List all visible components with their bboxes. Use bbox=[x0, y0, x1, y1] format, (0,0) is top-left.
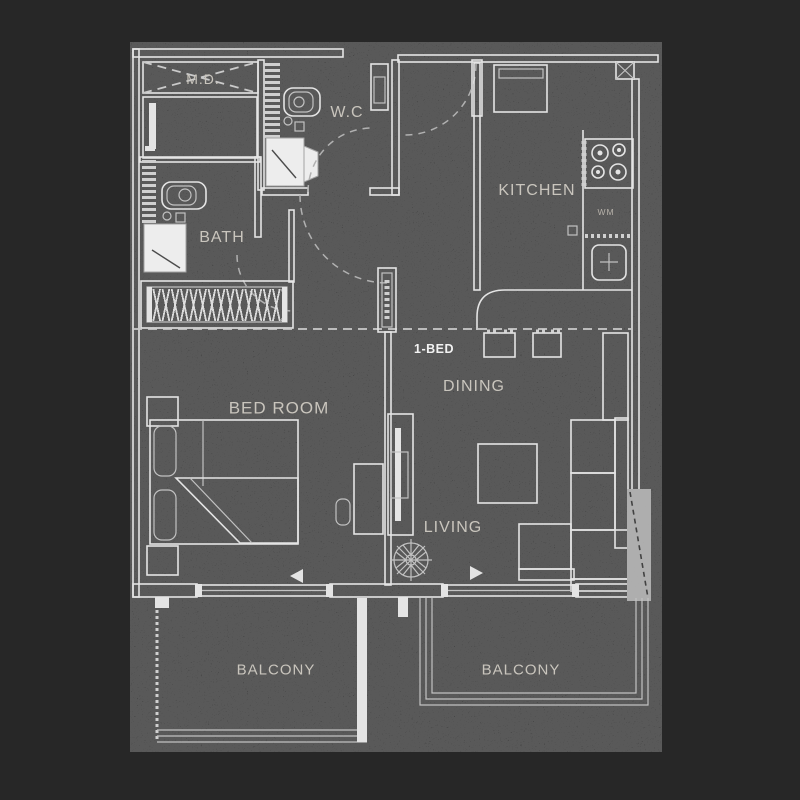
label-unit-type: 1-BED bbox=[414, 343, 454, 356]
label-dining: DINING bbox=[443, 379, 505, 395]
floor-plan-image: M.D. W.C BATH KITCHEN WM 1-BED DINING BE… bbox=[0, 0, 800, 800]
label-bath: BATH bbox=[199, 230, 244, 246]
label-md-closet: M.D. bbox=[186, 72, 220, 86]
label-balcony-right: BALCONY bbox=[482, 663, 561, 678]
label-wc: W.C bbox=[330, 105, 363, 121]
floor-plan-drawing bbox=[0, 0, 800, 800]
label-bedroom: BED ROOM bbox=[229, 400, 330, 417]
label-washing-machine: WM bbox=[597, 208, 614, 217]
label-living: LIVING bbox=[424, 520, 482, 536]
wardrobe-hangers bbox=[150, 289, 283, 321]
label-balcony-left: BALCONY bbox=[237, 663, 316, 678]
label-kitchen: KITCHEN bbox=[498, 183, 575, 199]
grain-overlay bbox=[130, 42, 662, 752]
